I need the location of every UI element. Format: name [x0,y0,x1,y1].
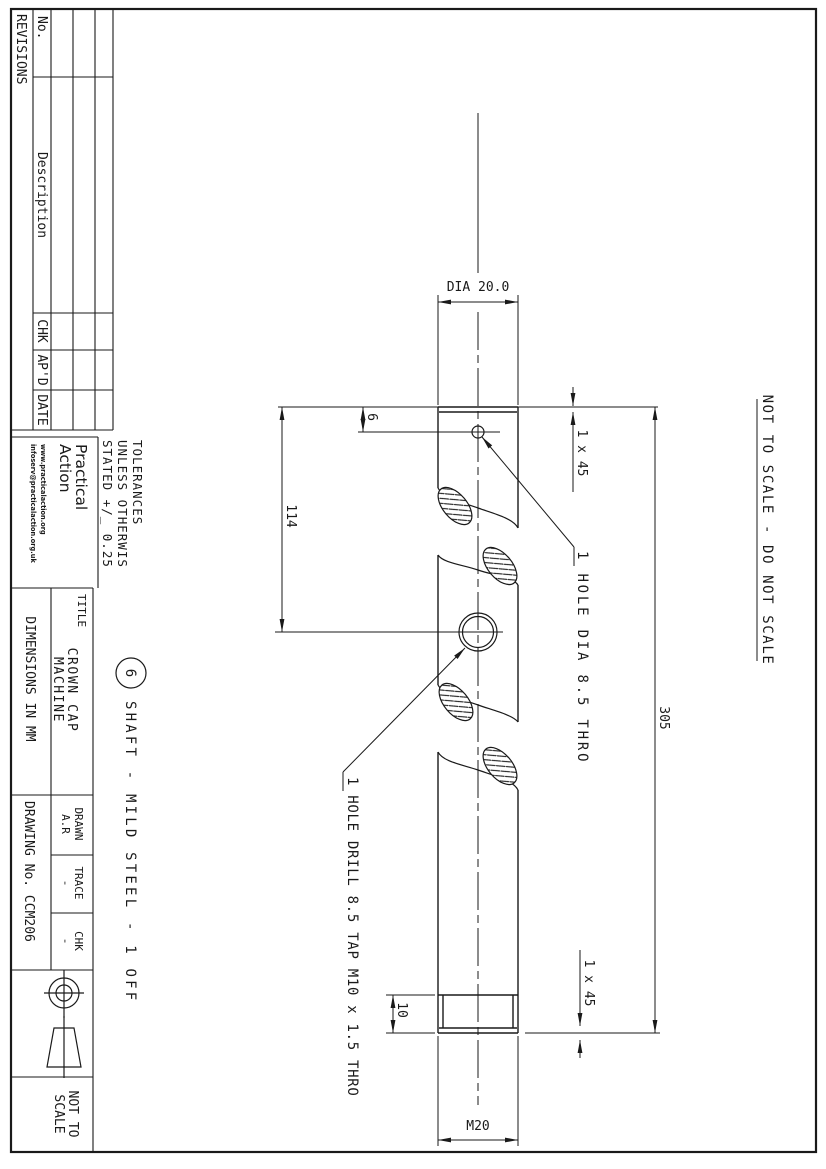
note-hole-dia: 1 HOLE DIA 8.5 THRO [574,551,590,764]
dim-114-text: 114 [283,504,298,528]
dim-dia20: DIA 20.0 [438,280,518,302]
part-description: SHAFT - MILD STEEL - 1 OFF [122,701,138,1003]
dim-chamfer-left: 1 x 45 [573,387,589,492]
logo-box: Practical Action www.practicalaction.org… [11,437,98,588]
dimensions-note: DIMENSIONS IN MM [22,616,37,741]
tolerances-line1: TOLERANCES [130,440,145,525]
leader-hole-drill: 1 HOLE DRILL 8.5 TAP M10 x 1.5 THRO [343,648,465,1097]
dim-10-text: 10 [394,1002,409,1018]
part-title-line1: CROWN CAP [64,648,79,733]
revisions-labels: REVISIONS No. Description CHK AP'D DATE [13,14,49,426]
leader-hole-dia: 1 HOLE DIA 8.5 THRO [482,437,590,764]
revisions-col-chk: CHK [34,319,49,343]
dim-chamfer-right: 1 x 45 [580,950,596,1058]
revisions-title: REVISIONS [13,14,28,84]
tolerances-note: TOLERANCES UNLESS OTHERWIS STATED +/_ 0.… [100,440,145,568]
note-hole-drill: 1 HOLE DRILL 8.5 TAP M10 x 1.5 THRO [344,777,360,1097]
revisions-col-description: Description [34,152,49,238]
dim-305: 305 [655,407,671,1033]
tolerances-line3: STATED +/_ 0.25 [100,440,115,568]
drawn-label: DRAWN [72,807,85,840]
dim-m20: M20 [438,1119,518,1140]
dim-chamfer-right-text: 1 x 45 [581,960,596,1007]
revisions-col-apd: AP'D [34,354,49,385]
logo-url: www.practicalaction.org [39,444,47,535]
dim-chamfer-left-text: 1 x 45 [574,430,589,477]
title-label: TITLE [75,594,88,627]
drawn-value: A.R [59,814,72,834]
scale-note-line2: SCALE [51,1094,66,1133]
dim-6: 6 [363,407,379,432]
logo-name-line2: Action [56,444,74,493]
tolerances-line2: UNLESS OTHERWIS [115,440,130,568]
chk-label: CHK [72,931,85,951]
drawing-sheet: REVISIONS No. Description CHK AP'D DATE … [0,0,826,1169]
trace-value: - [59,880,72,887]
drawing-number: DRAWING No. CCM206 [21,801,36,942]
projection-symbol-icon [44,970,84,1078]
engineering-drawing: REVISIONS No. Description CHK AP'D DATE … [0,0,826,1169]
logo-name-line1: Practical [72,444,90,510]
scale-warning: NOT TO SCALE - DO NOT SCALE [757,395,775,666]
dim-114: 114 [282,407,298,632]
chk-value: - [59,938,72,945]
landscape-canvas: REVISIONS No. Description CHK AP'D DATE … [0,0,826,1169]
logo-email: infoserv@practicalaction.org.uk [29,444,37,563]
dim-6-text: 6 [364,413,379,421]
scale-note-line1: NOT TO [65,1091,80,1138]
revisions-col-date: DATE [34,394,49,425]
dim-305-text: 305 [656,706,671,729]
dim-m20-text: M20 [466,1119,489,1134]
scale-warning-text: NOT TO SCALE - DO NOT SCALE [759,395,775,666]
part-label: 6 SHAFT - MILD STEEL - 1 OFF [116,658,146,1003]
dim-10: 10 [393,995,409,1033]
trace-label: TRACE [72,866,85,899]
revisions-col-no: No. [34,16,49,39]
title-block-text: TITLE CROWN CAP MACHINE DIMENSIONS IN MM… [21,594,88,1138]
part-title-line2: MACHINE [50,657,65,723]
dim-dia20-text: DIA 20.0 [447,280,510,295]
balloon-number: 6 [122,669,138,677]
